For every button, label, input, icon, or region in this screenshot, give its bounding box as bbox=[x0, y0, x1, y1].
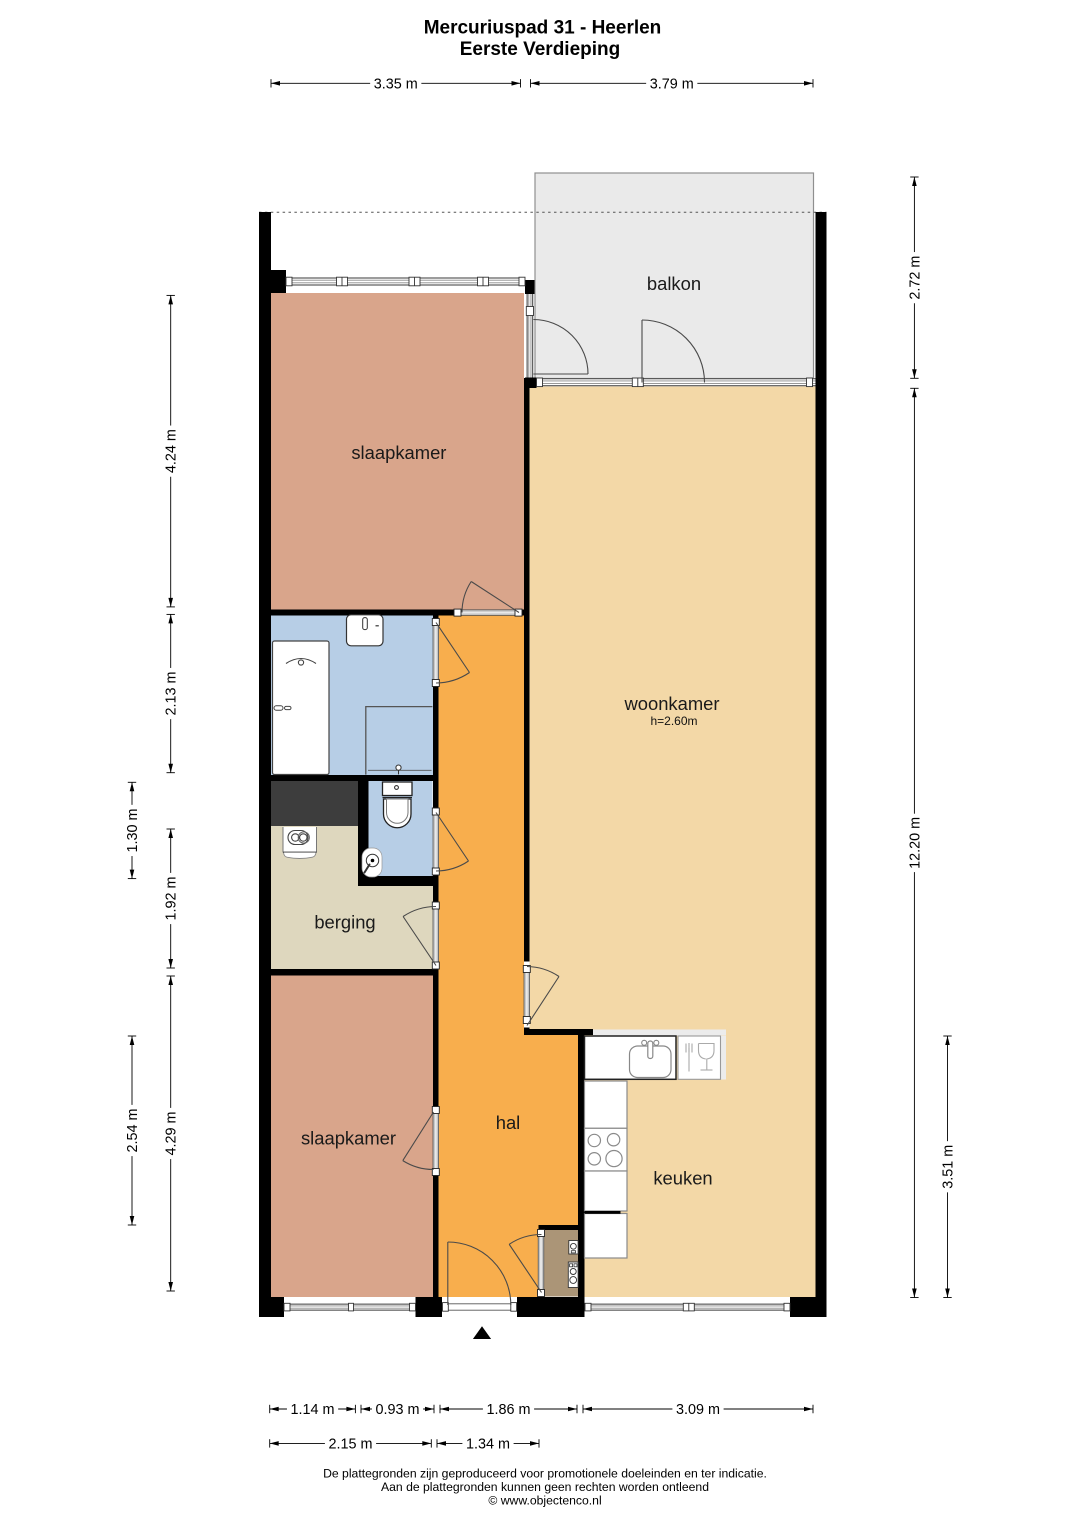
svg-text:hal: hal bbox=[496, 1112, 521, 1133]
svg-text:1.92 m: 1.92 m bbox=[164, 876, 180, 920]
svg-text:Aan de plattegronden kunnen ge: Aan de plattegronden kunnen geen rechten… bbox=[381, 1480, 709, 1494]
svg-text:slaapkamer: slaapkamer bbox=[301, 1128, 396, 1149]
svg-text:h=2.60m: h=2.60m bbox=[650, 714, 697, 728]
svg-text:2.15 m: 2.15 m bbox=[329, 1436, 373, 1452]
svg-text:1.86 m: 1.86 m bbox=[487, 1402, 531, 1418]
svg-text:0.93 m: 0.93 m bbox=[376, 1402, 420, 1418]
svg-text:woonkamer: woonkamer bbox=[623, 693, 719, 714]
svg-text:3.09 m: 3.09 m bbox=[676, 1402, 720, 1418]
svg-text:3.35 m: 3.35 m bbox=[374, 76, 418, 92]
svg-text:1.34 m: 1.34 m bbox=[466, 1436, 510, 1452]
svg-text:keuken: keuken bbox=[653, 1168, 712, 1189]
svg-text:slaapkamer: slaapkamer bbox=[351, 442, 446, 463]
svg-text:De plattegronden zijn geproduc: De plattegronden zijn geproduceerd voor … bbox=[323, 1466, 767, 1480]
svg-text:3.51 m: 3.51 m bbox=[941, 1145, 957, 1189]
svg-text:2.13 m: 2.13 m bbox=[164, 672, 180, 716]
svg-text:balkon: balkon bbox=[647, 273, 701, 294]
svg-text:Mercuriuspad 31 - Heerlen: Mercuriuspad 31 - Heerlen bbox=[424, 18, 662, 39]
svg-text:4.24 m: 4.24 m bbox=[164, 429, 180, 473]
svg-text:Eerste Verdieping: Eerste Verdieping bbox=[460, 39, 621, 60]
svg-text:3.79 m: 3.79 m bbox=[650, 76, 694, 92]
svg-text:2.72 m: 2.72 m bbox=[907, 256, 923, 300]
svg-text:2.54 m: 2.54 m bbox=[125, 1108, 141, 1152]
svg-text:12.20 m: 12.20 m bbox=[907, 817, 923, 869]
svg-text:1.30 m: 1.30 m bbox=[125, 808, 141, 852]
svg-text:1.14 m: 1.14 m bbox=[291, 1402, 335, 1418]
svg-text:berging: berging bbox=[314, 912, 375, 933]
svg-text:4.29 m: 4.29 m bbox=[164, 1111, 180, 1155]
svg-text:© www.objectenco.nl: © www.objectenco.nl bbox=[488, 1493, 601, 1507]
